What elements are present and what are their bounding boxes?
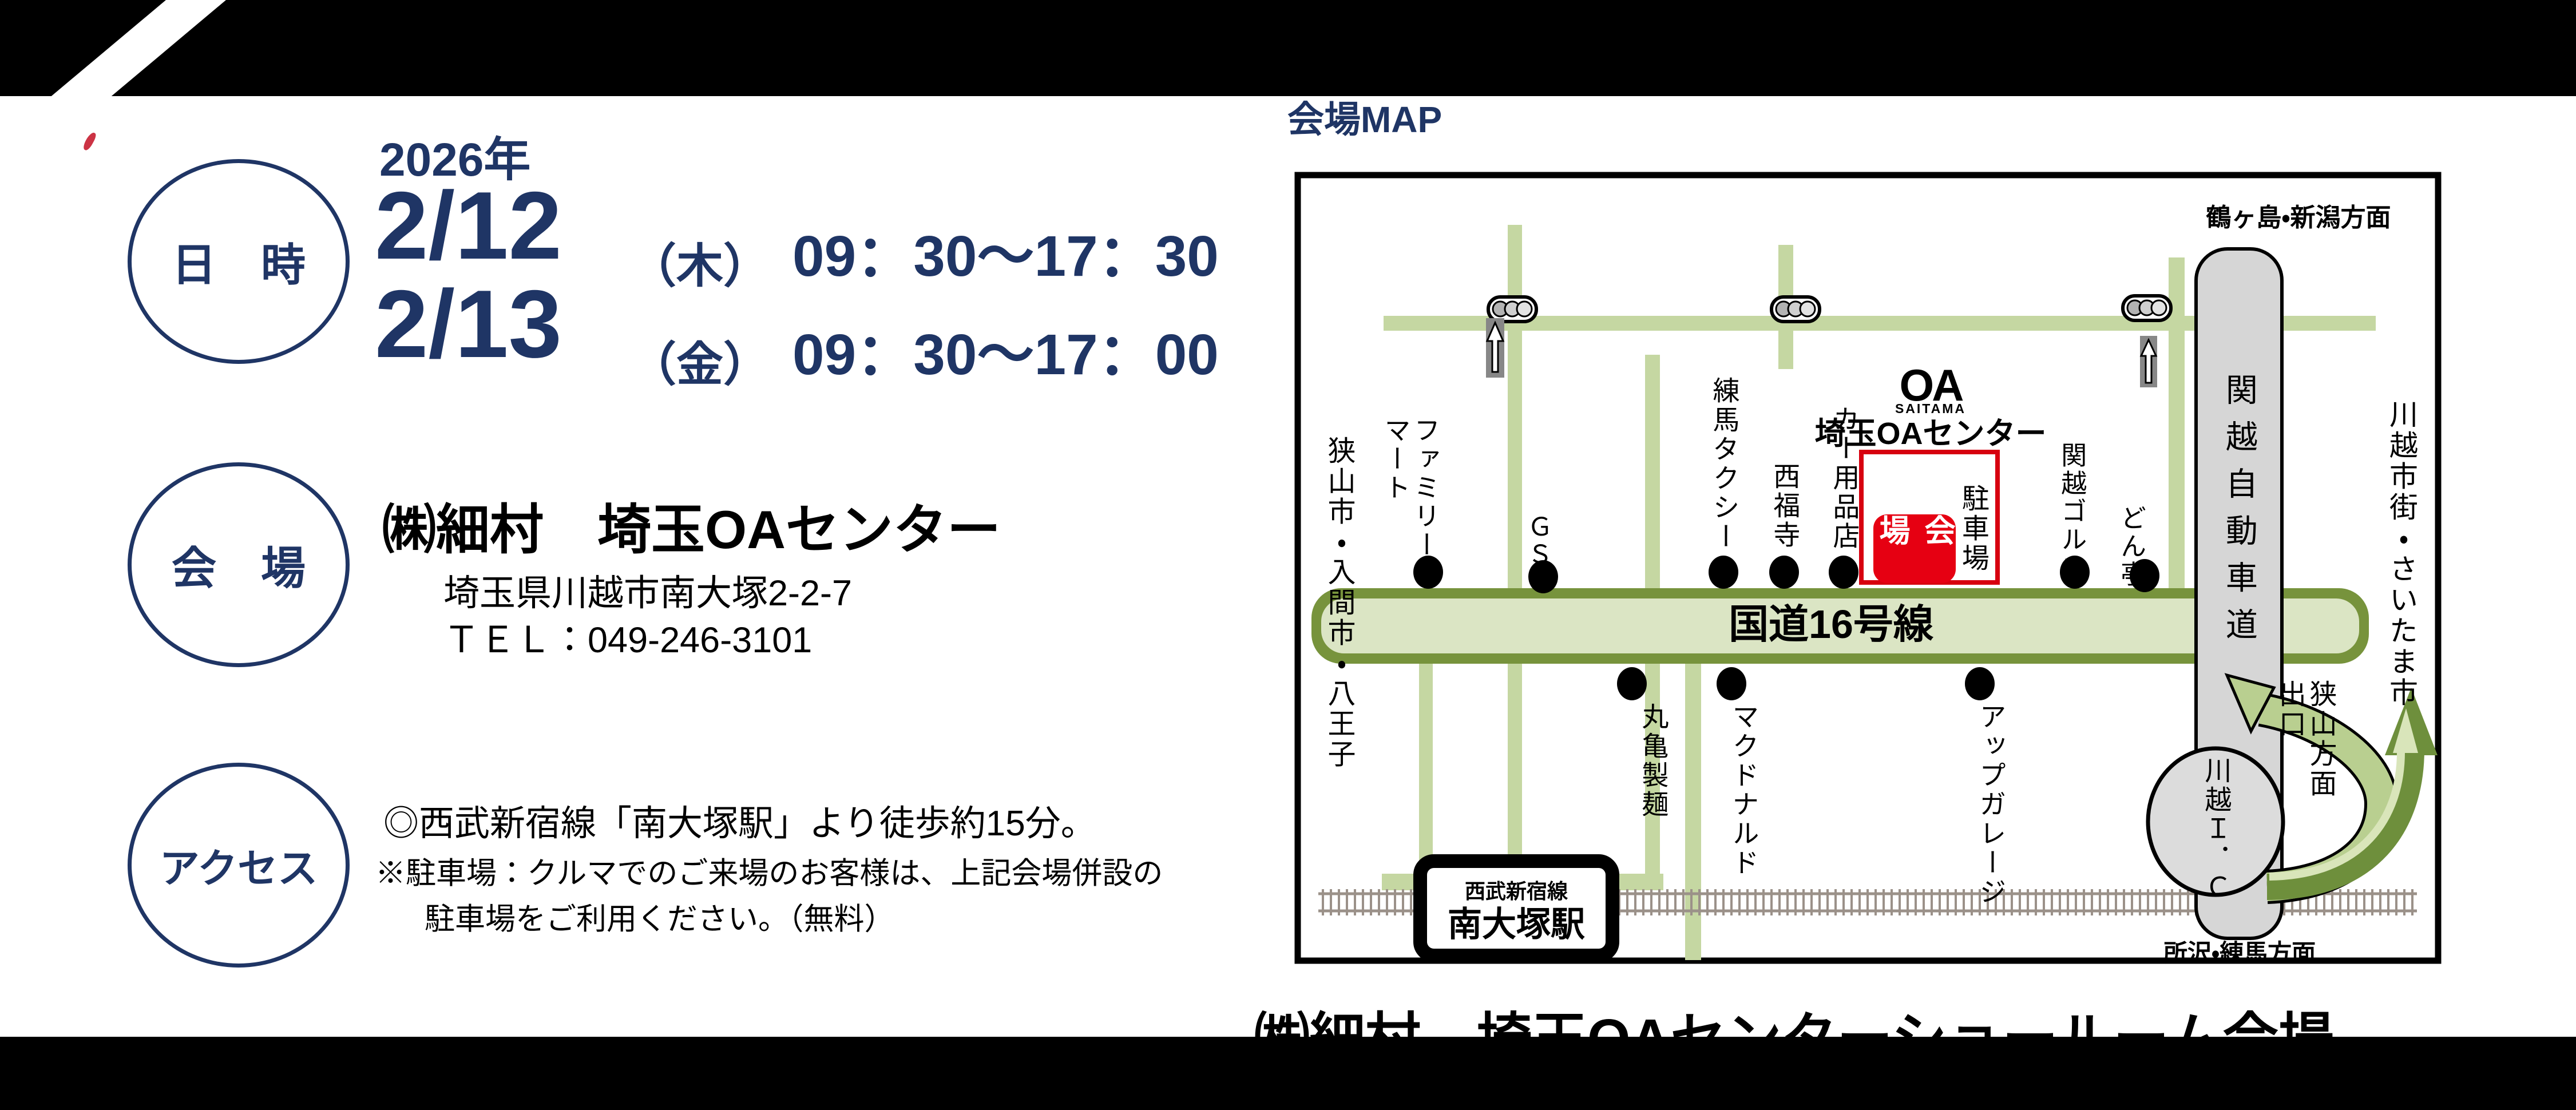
badge-venue-label: 会 場 — [172, 533, 306, 597]
expressway-label: 関越自動車道 — [2221, 373, 2257, 655]
venue-name: ㈱細村 埼玉OAセンター — [382, 486, 1001, 564]
oa-logo-sub: SAITAMA — [1895, 402, 1966, 417]
session2-date: 2/13 — [375, 276, 562, 372]
bottom-scan-border — [0, 1037, 2576, 1110]
interchange-label: 川越Ｉ．Ｃ — [2201, 756, 2231, 902]
session2-time: 09：30～17：00 — [792, 308, 1219, 391]
badge-datetime-label: 日 時 — [172, 229, 306, 294]
poi-dot-upgarage — [1965, 667, 1995, 700]
poi-dot-marugame — [1617, 667, 1647, 700]
parking-label: 駐車場 — [1957, 484, 1988, 573]
top-scan-border — [0, 0, 2576, 96]
landmark-upgarage: アップガレージ — [1975, 703, 2006, 907]
poi-dot-mcdonalds — [1717, 667, 1746, 700]
session1-weekday: （木） — [629, 228, 770, 296]
direction-north: 鶴ヶ島・新潟方面 — [2206, 204, 2391, 232]
traffic-light-icon-3 — [2123, 296, 2171, 320]
session1-date: 2/12 — [375, 177, 562, 273]
access-walk: ◎西武新宿線「南大塚駅」より徒歩約15分。 — [383, 794, 1096, 846]
landmark-nerima-taxi: 練馬タクシー — [1709, 376, 1739, 552]
one-way-arrow-icon-2 — [2140, 336, 2157, 387]
direction-south: 所沢・練馬方面 — [2163, 939, 2316, 966]
traffic-light-icon-1 — [1488, 297, 1536, 322]
flyer-page: 日 時 2026年 2/12 （木） 09：30～17：30 2/13 （金） … — [0, 0, 2576, 1110]
red-stray-mark — [82, 131, 97, 152]
access-parking-note1: ※駐車場：クルマでのご来場のお客様は、上記会場併設の — [375, 849, 1163, 893]
direction-exit: 狭山方面出口 — [2274, 680, 2336, 816]
station-name-label: 南大塚駅 — [1448, 905, 1585, 943]
map-title: 会場MAP — [1287, 90, 1442, 143]
venue-map: 会場 駐車場 OA SAITAMA 埼玉OAセンター 国道16号線 関越自動車道… — [1294, 172, 2442, 964]
session2-weekday: （金） — [629, 326, 770, 394]
landmark-marugame: 丸亀製麺 — [1638, 703, 1668, 819]
traffic-light-icon-2 — [1772, 297, 1820, 322]
landmark-gs: ＧＳ — [1523, 514, 1551, 569]
landmark-famima: ファミリーマート — [1379, 417, 1440, 570]
badge-access-label: アクセス — [160, 837, 318, 894]
session1-time: 09：30～17：30 — [792, 209, 1219, 292]
station-line-label: 西武新宿線 — [1465, 880, 1568, 903]
landmark-car-shop: カー用品店 — [1829, 405, 1859, 551]
hall-label: 会場 — [1869, 514, 1960, 583]
badge-venue: 会 場 — [128, 462, 350, 667]
landmark-dontei: どん亭 — [2117, 505, 2145, 589]
landmark-mcdonalds: マクドナルド — [1728, 703, 1758, 878]
venue-tel: ＴＥＬ：049-246-3101 — [443, 611, 812, 663]
landmark-saifukuji: 西福寺 — [1769, 462, 1800, 550]
poi-dot-nerima-taxi — [1709, 556, 1738, 589]
poi-dot-car-shop — [1829, 556, 1858, 589]
route16-label: 国道16号線 — [1729, 602, 1933, 647]
direction-east: 川越市街・さいたま市 — [2385, 399, 2418, 708]
hall-box: 会場 — [1873, 514, 1956, 583]
badge-access: アクセス — [128, 763, 350, 968]
badge-datetime: 日 時 — [128, 159, 350, 364]
venue-address: 埼玉県川越市南大塚2-2-7 — [443, 564, 852, 616]
landmark-kanetsu-golf: 関越ゴルフ — [2057, 442, 2086, 582]
access-parking-note2: 駐車場をご利用ください。（無料） — [425, 895, 895, 938]
direction-west: 狭山市・入間市・八王子 — [1323, 436, 1355, 770]
one-way-arrow-icon-1 — [1486, 318, 1504, 378]
poi-dot-saifukuji — [1769, 556, 1799, 589]
